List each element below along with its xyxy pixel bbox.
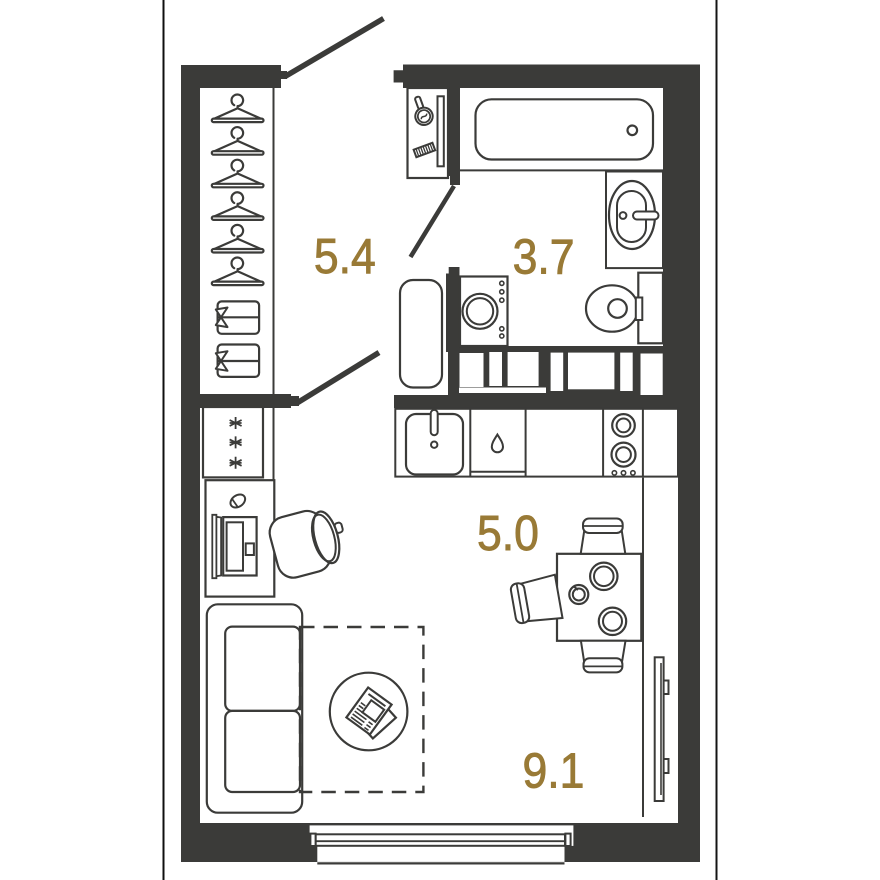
svg-text:5.4: 5.4 [314,228,376,284]
svg-text:5.0: 5.0 [477,505,539,561]
svg-text:3.7: 3.7 [513,228,575,284]
svg-text:9.1: 9.1 [522,742,584,798]
